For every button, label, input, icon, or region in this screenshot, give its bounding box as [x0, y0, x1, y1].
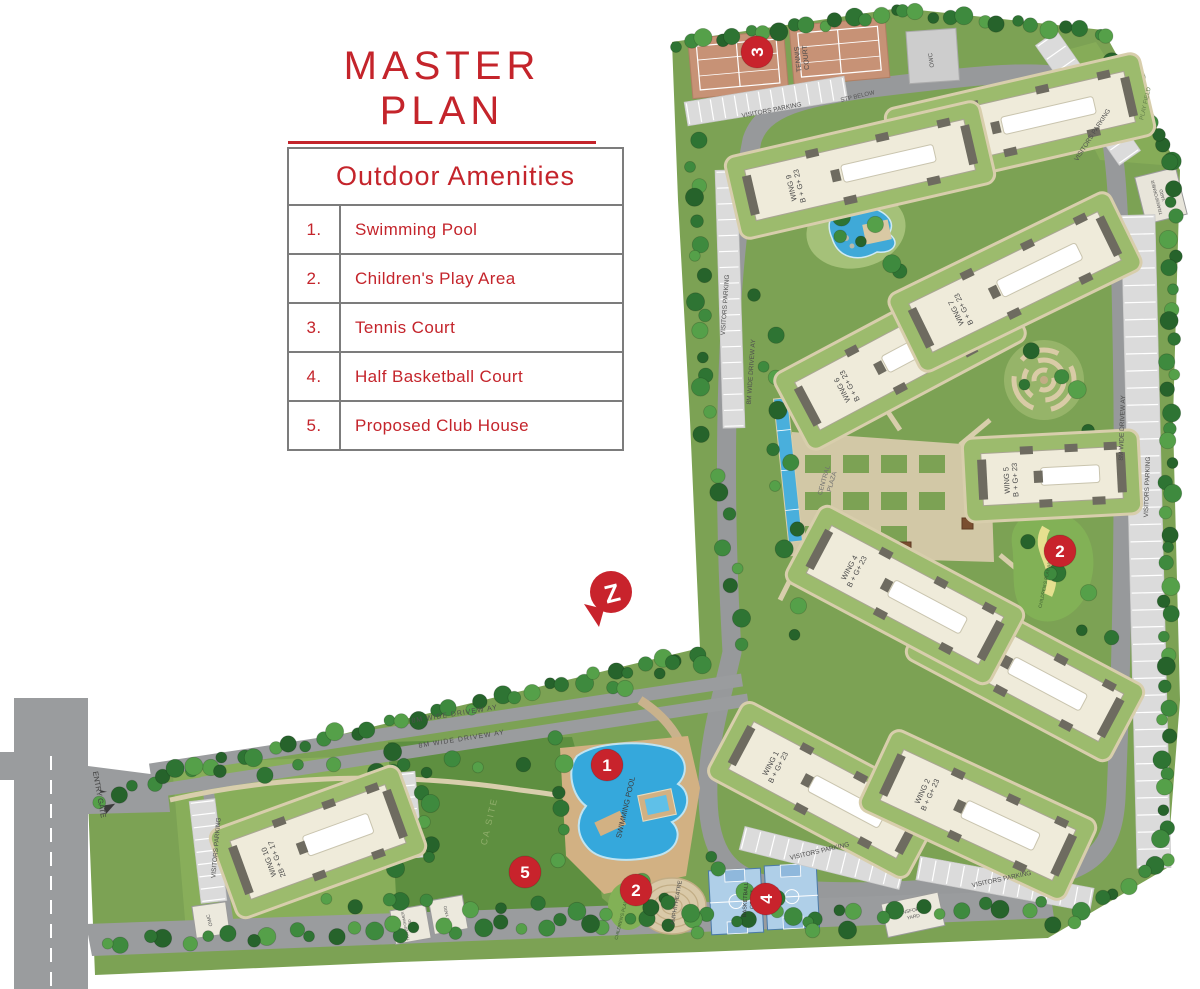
- tree-icon: [954, 903, 970, 919]
- tree-icon: [883, 255, 901, 273]
- tree-icon: [420, 894, 433, 907]
- tree-icon: [1168, 284, 1179, 295]
- tree-icon: [555, 755, 573, 773]
- tree-icon: [1068, 916, 1081, 929]
- svg-text:2: 2: [1055, 542, 1064, 561]
- tree-icon: [1153, 751, 1171, 769]
- tree-icon: [496, 903, 507, 914]
- external-road: [0, 698, 88, 989]
- tree-icon: [600, 908, 613, 921]
- tree-icon: [685, 188, 703, 206]
- amenity-marker-4: 4: [750, 883, 782, 915]
- tree-icon: [873, 7, 889, 23]
- tree-icon: [827, 13, 842, 28]
- tree-icon: [475, 919, 493, 937]
- tree-icon: [783, 454, 799, 470]
- tree-icon: [185, 757, 203, 775]
- building-wing-5: WING 5B + G+ 23: [962, 429, 1142, 522]
- tree-icon: [112, 937, 128, 953]
- tree-icon: [711, 469, 726, 484]
- tree-icon: [697, 352, 708, 363]
- amenities-heading: Outdoor Amenities: [289, 149, 622, 206]
- amenity-label: Tennis Court: [341, 304, 622, 351]
- tree-icon: [290, 923, 305, 938]
- tree-icon: [697, 268, 712, 283]
- amenity-label: Swimming Pool: [341, 206, 622, 253]
- tree-icon: [694, 28, 712, 46]
- tree-icon: [704, 406, 717, 419]
- tree-icon: [1023, 18, 1038, 33]
- svg-text:1: 1: [602, 756, 611, 775]
- tree-icon: [1159, 354, 1175, 370]
- page-title: MASTER PLAN: [288, 44, 596, 144]
- tree-icon: [877, 911, 890, 924]
- tree-icon: [384, 715, 395, 726]
- tree-icon: [1076, 625, 1087, 636]
- tree-icon: [1160, 382, 1175, 397]
- tree-icon: [699, 309, 712, 322]
- tree-icon: [732, 916, 743, 927]
- spiral-garden: [1004, 340, 1084, 420]
- tree-icon: [421, 794, 439, 812]
- tree-icon: [711, 862, 726, 877]
- tree-icon: [735, 638, 748, 651]
- tree-icon: [144, 930, 157, 943]
- tree-icon: [686, 293, 704, 311]
- tree-icon: [329, 929, 345, 945]
- tree-icon: [1036, 896, 1047, 907]
- amenity-row: 1. Swimming Pool: [289, 206, 622, 255]
- tree-icon: [767, 443, 780, 456]
- tree-icon: [1023, 343, 1039, 359]
- amenity-label: Half Basketball Court: [341, 353, 622, 400]
- tree-icon: [1098, 29, 1113, 44]
- tree-icon: [257, 767, 273, 783]
- tree-icon: [166, 759, 184, 777]
- tree-icon: [790, 598, 806, 614]
- tree-icon: [102, 938, 113, 949]
- tree-icon: [758, 361, 769, 372]
- tree-icon: [845, 903, 861, 919]
- master-plan-page: OWC TRANSFORMER YARD: [0, 0, 1200, 989]
- tree-icon: [1121, 878, 1137, 894]
- tree-icon: [1169, 209, 1184, 224]
- amenity-label: Proposed Club House: [341, 402, 622, 449]
- tree-icon: [348, 922, 361, 935]
- tree-icon: [1157, 657, 1175, 675]
- tree-icon: [1068, 381, 1086, 399]
- tree-icon: [1159, 506, 1172, 519]
- tree-icon: [723, 578, 738, 593]
- tree-icon: [834, 905, 845, 916]
- tree-icon: [682, 904, 700, 922]
- tree-icon: [1163, 542, 1174, 553]
- tree-icon: [790, 522, 805, 537]
- tree-icon: [493, 915, 508, 930]
- tree-icon: [1040, 21, 1058, 39]
- tree-icon: [692, 322, 708, 338]
- tree-icon: [1013, 15, 1024, 26]
- tree-icon: [326, 757, 341, 772]
- amenity-row: 5. Proposed Club House: [289, 402, 622, 449]
- tree-icon: [798, 17, 814, 33]
- tree-icon: [1021, 534, 1036, 549]
- tree-icon: [280, 736, 296, 752]
- amenity-row: 2. Children's Play Area: [289, 255, 622, 304]
- tree-icon: [1096, 890, 1111, 905]
- tree-icon: [1169, 369, 1180, 380]
- tree-icon: [1071, 20, 1087, 36]
- tree-icon: [732, 563, 743, 574]
- tree-icon: [326, 723, 344, 741]
- amenity-number: 2.: [289, 255, 341, 302]
- tree-icon: [383, 893, 396, 906]
- tree-icon: [384, 743, 402, 761]
- tennis-court-label: TENNIS COURT: [794, 43, 812, 72]
- tree-icon: [394, 714, 409, 729]
- tree-icon: [955, 7, 973, 25]
- tree-icon: [710, 483, 728, 501]
- svg-text:5: 5: [520, 863, 529, 882]
- amenity-number: 5.: [289, 402, 341, 449]
- amenity-marker-1: 1: [591, 749, 623, 781]
- tree-icon: [472, 762, 483, 773]
- tree-icon: [625, 913, 636, 924]
- tree-icon: [1158, 680, 1171, 693]
- svg-text:4: 4: [757, 894, 776, 904]
- tree-icon: [552, 786, 565, 799]
- tree-icon: [805, 923, 820, 938]
- tree-icon: [348, 900, 363, 915]
- tree-icon: [1159, 555, 1174, 570]
- tree-icon: [693, 656, 711, 674]
- tree-icon: [462, 902, 478, 918]
- tree-icon: [358, 722, 374, 738]
- tree-icon: [558, 824, 569, 835]
- tree-icon: [907, 3, 923, 19]
- tree-icon: [1165, 197, 1176, 208]
- tree-icon: [770, 481, 781, 492]
- tree-icon: [111, 787, 127, 803]
- tree-icon: [421, 767, 432, 778]
- tree-icon: [1080, 585, 1096, 601]
- tree-icon: [183, 937, 198, 952]
- tree-icon: [1165, 181, 1181, 197]
- tree-icon: [216, 752, 227, 763]
- tree-icon: [691, 378, 709, 396]
- amenity-row: 4. Half Basketball Court: [289, 353, 622, 402]
- amenity-row: 3. Tennis Court: [289, 304, 622, 353]
- tree-icon: [1019, 379, 1030, 390]
- tree-icon: [654, 668, 665, 679]
- tree-icon: [706, 851, 717, 862]
- amenity-marker-2: 2: [620, 874, 652, 906]
- tree-icon: [775, 540, 793, 558]
- tree-icon: [366, 922, 384, 940]
- tree-icon: [691, 215, 704, 228]
- tree-icon: [834, 230, 847, 243]
- tree-icon: [424, 852, 435, 863]
- tree-icon: [724, 28, 740, 44]
- tree-icon: [1151, 830, 1169, 848]
- amenity-number: 3.: [289, 304, 341, 351]
- tree-icon: [548, 731, 563, 746]
- tree-icon: [1167, 458, 1178, 469]
- tree-icon: [622, 667, 633, 678]
- tree-icon: [126, 780, 137, 791]
- amenity-number: 1.: [289, 206, 341, 253]
- tree-icon: [508, 691, 521, 704]
- amenity-marker-3: 3: [741, 36, 773, 68]
- tree-icon: [1162, 729, 1177, 744]
- tree-icon: [991, 900, 1009, 918]
- tree-icon: [1160, 312, 1178, 330]
- tree-icon: [1156, 779, 1172, 795]
- tree-icon: [203, 931, 214, 942]
- tree-icon: [988, 16, 1004, 32]
- tree-icon: [855, 236, 866, 247]
- tree-icon: [248, 934, 261, 947]
- tree-icon: [917, 899, 932, 914]
- tree-icon: [617, 680, 633, 696]
- tree-icon: [516, 757, 531, 772]
- tree-icon: [551, 853, 566, 868]
- tree-icon: [748, 289, 761, 302]
- tree-icon: [1164, 484, 1182, 502]
- tree-icon: [516, 923, 527, 934]
- tree-icon: [524, 684, 540, 700]
- amenity-number: 4.: [289, 353, 341, 400]
- tree-icon: [1162, 154, 1178, 170]
- tree-icon: [1139, 865, 1152, 878]
- swimming-pool-complex: [560, 736, 700, 894]
- tree-icon: [1162, 527, 1178, 543]
- owc-box-top: OWC: [906, 28, 960, 83]
- tree-icon: [1157, 714, 1168, 725]
- tree-icon: [714, 540, 730, 556]
- tree-icon: [867, 216, 883, 232]
- tree-icon: [1159, 230, 1177, 248]
- tree-icon: [789, 629, 800, 640]
- tree-icon: [934, 909, 945, 920]
- tree-icon: [928, 13, 939, 24]
- tree-icon: [1161, 259, 1177, 275]
- tree-icon: [638, 657, 653, 672]
- tree-icon: [685, 161, 696, 172]
- tree-icon: [665, 655, 680, 670]
- tree-icon: [768, 327, 784, 343]
- amenity-label: Children's Play Area: [341, 255, 622, 302]
- tree-icon: [689, 250, 700, 261]
- tree-icon: [770, 23, 788, 41]
- tree-icon: [1045, 917, 1061, 933]
- tree-icon: [244, 749, 262, 767]
- svg-text:3: 3: [748, 47, 767, 56]
- tree-icon: [1023, 903, 1038, 918]
- tree-icon: [304, 931, 315, 942]
- tree-icon: [554, 677, 569, 692]
- tree-icon: [838, 921, 856, 939]
- tree-icon: [587, 667, 600, 680]
- amenities-table: Outdoor Amenities 1. Swimming Pool 2. Ch…: [287, 147, 624, 451]
- tree-icon: [1104, 630, 1119, 645]
- tree-icon: [554, 913, 567, 926]
- amenity-marker-2: 2: [1044, 535, 1076, 567]
- tree-icon: [568, 902, 586, 920]
- amenity-marker-5: 5: [509, 856, 541, 888]
- tree-icon: [1158, 805, 1169, 816]
- tree-icon: [436, 918, 452, 934]
- tree-icon: [293, 759, 304, 770]
- tree-icon: [321, 893, 332, 904]
- tree-icon: [1158, 631, 1169, 642]
- wing-5-label: WING 5B + G+ 23: [1001, 463, 1020, 498]
- tree-icon: [553, 800, 569, 816]
- tree-icon: [385, 916, 401, 932]
- tree-icon: [1168, 333, 1181, 346]
- tree-icon: [220, 925, 236, 941]
- tree-icon: [408, 922, 419, 933]
- tree-icon: [1163, 606, 1179, 622]
- tree-icon: [732, 609, 750, 627]
- tree-icon: [859, 14, 872, 27]
- svg-text:2: 2: [631, 881, 640, 900]
- tree-icon: [214, 765, 227, 778]
- tree-icon: [1160, 432, 1176, 448]
- tree-icon: [723, 508, 736, 521]
- tree-icon: [444, 751, 460, 767]
- tree-icon: [1162, 577, 1180, 595]
- tree-icon: [691, 926, 704, 939]
- tree-icon: [531, 896, 546, 911]
- tree-icon: [300, 741, 311, 752]
- tree-icon: [1161, 767, 1174, 780]
- tree-icon: [539, 920, 555, 936]
- tree-icon: [784, 907, 802, 925]
- tree-icon: [691, 132, 707, 148]
- tree-icon: [671, 42, 682, 53]
- tree-icon: [979, 897, 992, 910]
- tree-icon: [1059, 21, 1072, 34]
- tree-icon: [1163, 404, 1181, 422]
- tree-icon: [693, 426, 709, 442]
- tree-icon: [1054, 369, 1069, 384]
- z-logo-pin: Z: [584, 571, 632, 627]
